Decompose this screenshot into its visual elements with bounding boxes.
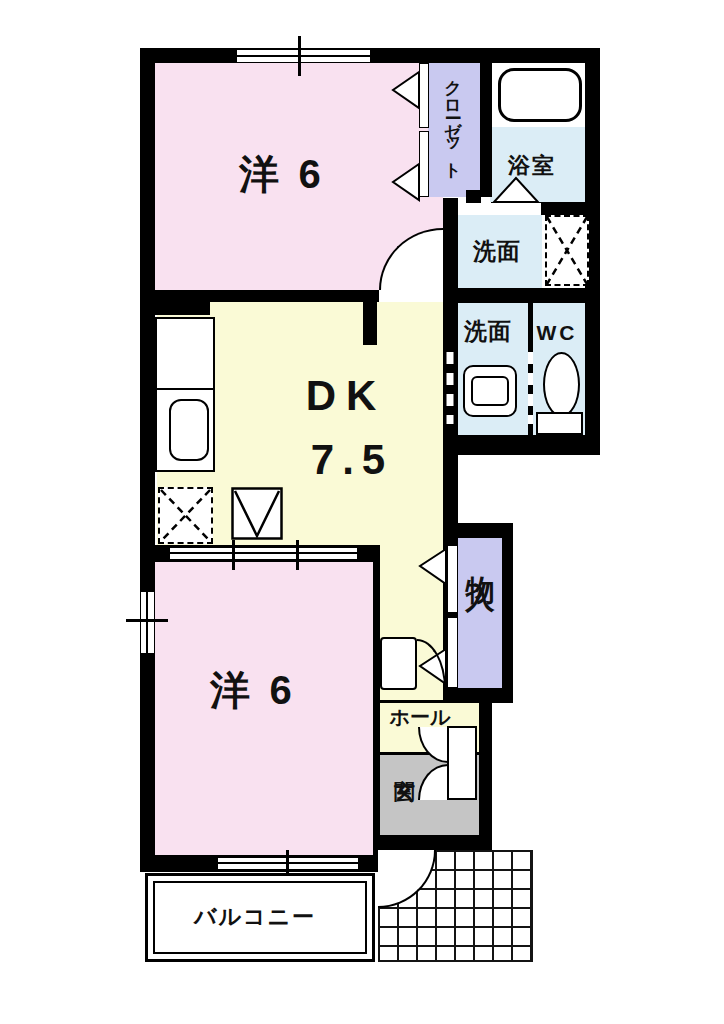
wall-segment [140, 290, 210, 315]
window-tick [126, 619, 168, 622]
sliding-door-dashes [528, 352, 533, 424]
wall-segment [373, 545, 380, 872]
wall-segment [373, 835, 492, 850]
wall-segment [479, 700, 492, 850]
room-label-dk: DK [306, 375, 387, 417]
storage-door-track [447, 617, 458, 688]
kitchen-counter-divider [155, 388, 215, 390]
wall-segment [466, 190, 481, 203]
wall-line [377, 700, 513, 703]
room-label-western-bottom: 洋 6 [210, 670, 295, 710]
door-opening [379, 290, 443, 302]
room-label-storage: 物入 [466, 553, 495, 565]
washbasin-bowl [471, 376, 509, 406]
water-heater-icon [231, 487, 283, 540]
window-line [146, 592, 148, 653]
storage-door-track [447, 545, 458, 613]
shoe-cabinet-icon [447, 726, 477, 800]
door-leaf [380, 637, 417, 690]
bifold-door-icon [419, 548, 448, 585]
room-label-washroom-upper: 洗面 [473, 240, 521, 263]
wall-segment [140, 48, 600, 63]
window-tick [298, 36, 301, 76]
bifold-door-icon [392, 71, 421, 109]
toilet-tank [536, 412, 583, 435]
wall-segment [140, 48, 155, 872]
window-tick [296, 540, 299, 570]
room-label-washroom-lower: 洗面 [464, 320, 512, 343]
room-label-entrance: 玄関 [395, 762, 416, 768]
room-label-hall: ホール [390, 707, 451, 727]
washing-machine-space-x [545, 215, 589, 286]
room-label-western-top: 洋 6 [239, 154, 324, 194]
toilet-icon [543, 352, 580, 417]
bath-threshold [491, 202, 541, 215]
window-line [170, 552, 357, 554]
room-label-closet: クローゼット [445, 68, 462, 171]
room-label-bath: 浴室 [508, 155, 556, 177]
room-label-balcony: バルコニー [194, 906, 316, 928]
sliding-door-dashes [446, 352, 455, 424]
bifold-door-icon [392, 163, 421, 201]
wall-segment [480, 63, 492, 197]
room-label-toilet: WC [537, 322, 578, 343]
window-tick [232, 540, 235, 570]
wall-segment [363, 290, 377, 345]
wall-segment [541, 202, 600, 215]
bath-folding-door-icon [492, 176, 540, 204]
kitchen-sink-icon [169, 399, 209, 461]
wall-segment [443, 288, 600, 303]
bathtub-icon [498, 68, 582, 122]
refrigerator-space-x [158, 487, 213, 544]
wall-segment [443, 435, 600, 455]
floor-plan: 洋 6 クローゼット 浴室 洗面 洗面 WC DK 7.5 物入 ホール 玄関 … [0, 0, 724, 1024]
window-line [237, 55, 370, 57]
room-label-dk-area: 7.5 [311, 439, 393, 481]
